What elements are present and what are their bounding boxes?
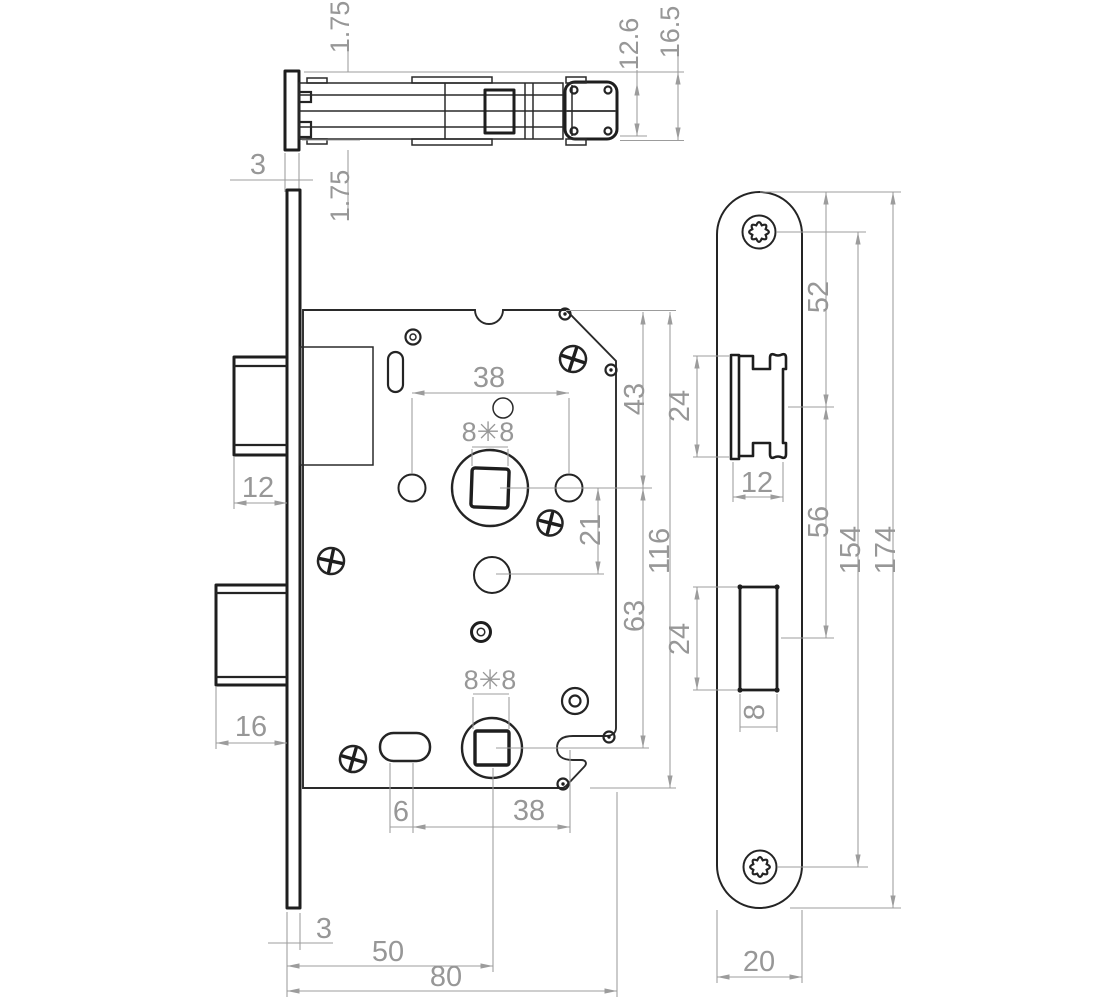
faceplate-edge-view xyxy=(287,190,300,908)
dim-label: 3 xyxy=(250,149,266,181)
faceplate-front-view xyxy=(717,192,802,908)
top-section-view xyxy=(285,71,617,150)
latch-cutout xyxy=(731,354,786,459)
dim-slot-to-spindle: 38 xyxy=(413,750,570,833)
dim-top-to-latch-center: 52 xyxy=(760,192,901,407)
dim-latch-to-deadbolt-center: 56 xyxy=(781,407,835,638)
dim-label: 12 xyxy=(741,467,773,499)
dim-label: 116 xyxy=(644,528,676,574)
dim-label: 24 xyxy=(664,623,696,655)
slot-vertical xyxy=(388,352,403,392)
dim-label: 16 xyxy=(235,711,267,743)
dim-label: 12 xyxy=(242,472,274,504)
dim-label: 43 xyxy=(619,383,651,415)
dim-label: 6 xyxy=(393,796,409,828)
dim-latch-cutout-width: 12 xyxy=(733,462,783,502)
small-hole xyxy=(493,398,513,418)
dim-deadbolt-cutout-height: 24 xyxy=(664,587,737,690)
dim-top-edge-to-spindle: 43 xyxy=(500,311,676,489)
dim-label: 174 xyxy=(870,526,902,574)
dim-label: 12.6 xyxy=(614,18,644,71)
latch-bolt-body xyxy=(300,347,373,465)
dim-latch-bolt-width: 12 xyxy=(234,457,287,509)
dim-label: 52 xyxy=(803,281,835,313)
dim-label: 1.75 xyxy=(325,1,355,54)
fixing-hole-left xyxy=(399,475,426,502)
case-outline xyxy=(303,310,616,788)
phillips-screw xyxy=(316,343,590,775)
dim-label: 8✳8 xyxy=(464,665,517,695)
dim-latch-body-height: 12.6 xyxy=(614,18,647,136)
dim-latch-cutout-height: 24 xyxy=(664,356,729,457)
dim-label: 154 xyxy=(835,526,867,574)
latch-bolt-head xyxy=(234,357,287,455)
lock-case-view xyxy=(216,309,617,790)
dim-label: 20 xyxy=(743,946,775,978)
dim-label: 50 xyxy=(372,936,404,968)
drawing-sheet: 1.75 12.6 16.5 3 1.75 xyxy=(0,0,1119,1000)
dim-label: 38 xyxy=(473,362,505,394)
dim-label: 38 xyxy=(513,795,545,827)
latch-spring-block xyxy=(299,92,311,102)
dim-screw-center-spacing: 154 xyxy=(777,232,868,867)
faceplate-section xyxy=(285,71,299,150)
dim-label: 63 xyxy=(619,600,651,632)
latch-guide-flange xyxy=(412,139,492,145)
dim-spindle-square-bottom: 8✳8 xyxy=(464,665,517,729)
dim-spindle-to-bottom-hub: 63 xyxy=(496,488,651,748)
dim-label: 1.75 xyxy=(325,170,355,223)
torx-screw-top xyxy=(743,216,776,249)
dim-label: 8✳8 xyxy=(462,417,515,447)
dim-label: 8 xyxy=(739,704,771,720)
dim-flange-offset-bottom: 1.75 xyxy=(302,140,360,222)
dim-plate-width: 20 xyxy=(717,910,802,983)
dim-deadbolt-cutout-width: 8 xyxy=(739,694,777,732)
dim-slot-width: 6 xyxy=(390,763,413,833)
dim-label: 21 xyxy=(575,514,607,546)
dim-label: 80 xyxy=(430,961,462,993)
dim-label: 3 xyxy=(316,913,332,945)
torx-screw-bottom xyxy=(744,851,777,884)
rivet xyxy=(558,309,617,790)
dim-spindle-square-top: 8✳8 xyxy=(462,417,515,466)
faceplate-outline xyxy=(717,192,802,908)
cylinder-hole xyxy=(474,557,510,593)
latch-spring-block xyxy=(299,122,311,137)
deadbolt-head xyxy=(216,585,287,685)
dim-spindle-to-cylinder: 21 xyxy=(496,488,607,574)
latch-guide-flange xyxy=(412,77,492,83)
dim-faceplate-thickness-top: 3 xyxy=(230,149,313,192)
slot-horizontal xyxy=(380,733,430,761)
dim-label: 16.5 xyxy=(655,6,685,59)
dim-faceplate-thickness-bottom: 3 xyxy=(268,912,333,997)
dim-label: 56 xyxy=(803,506,835,538)
mortise-lock-technical-drawing: 1.75 12.6 16.5 3 1.75 xyxy=(0,0,1119,1000)
dim-label: 24 xyxy=(664,390,696,422)
deadbolt-cutout xyxy=(737,584,779,692)
dim-deadbolt-width: 16 xyxy=(216,687,287,749)
